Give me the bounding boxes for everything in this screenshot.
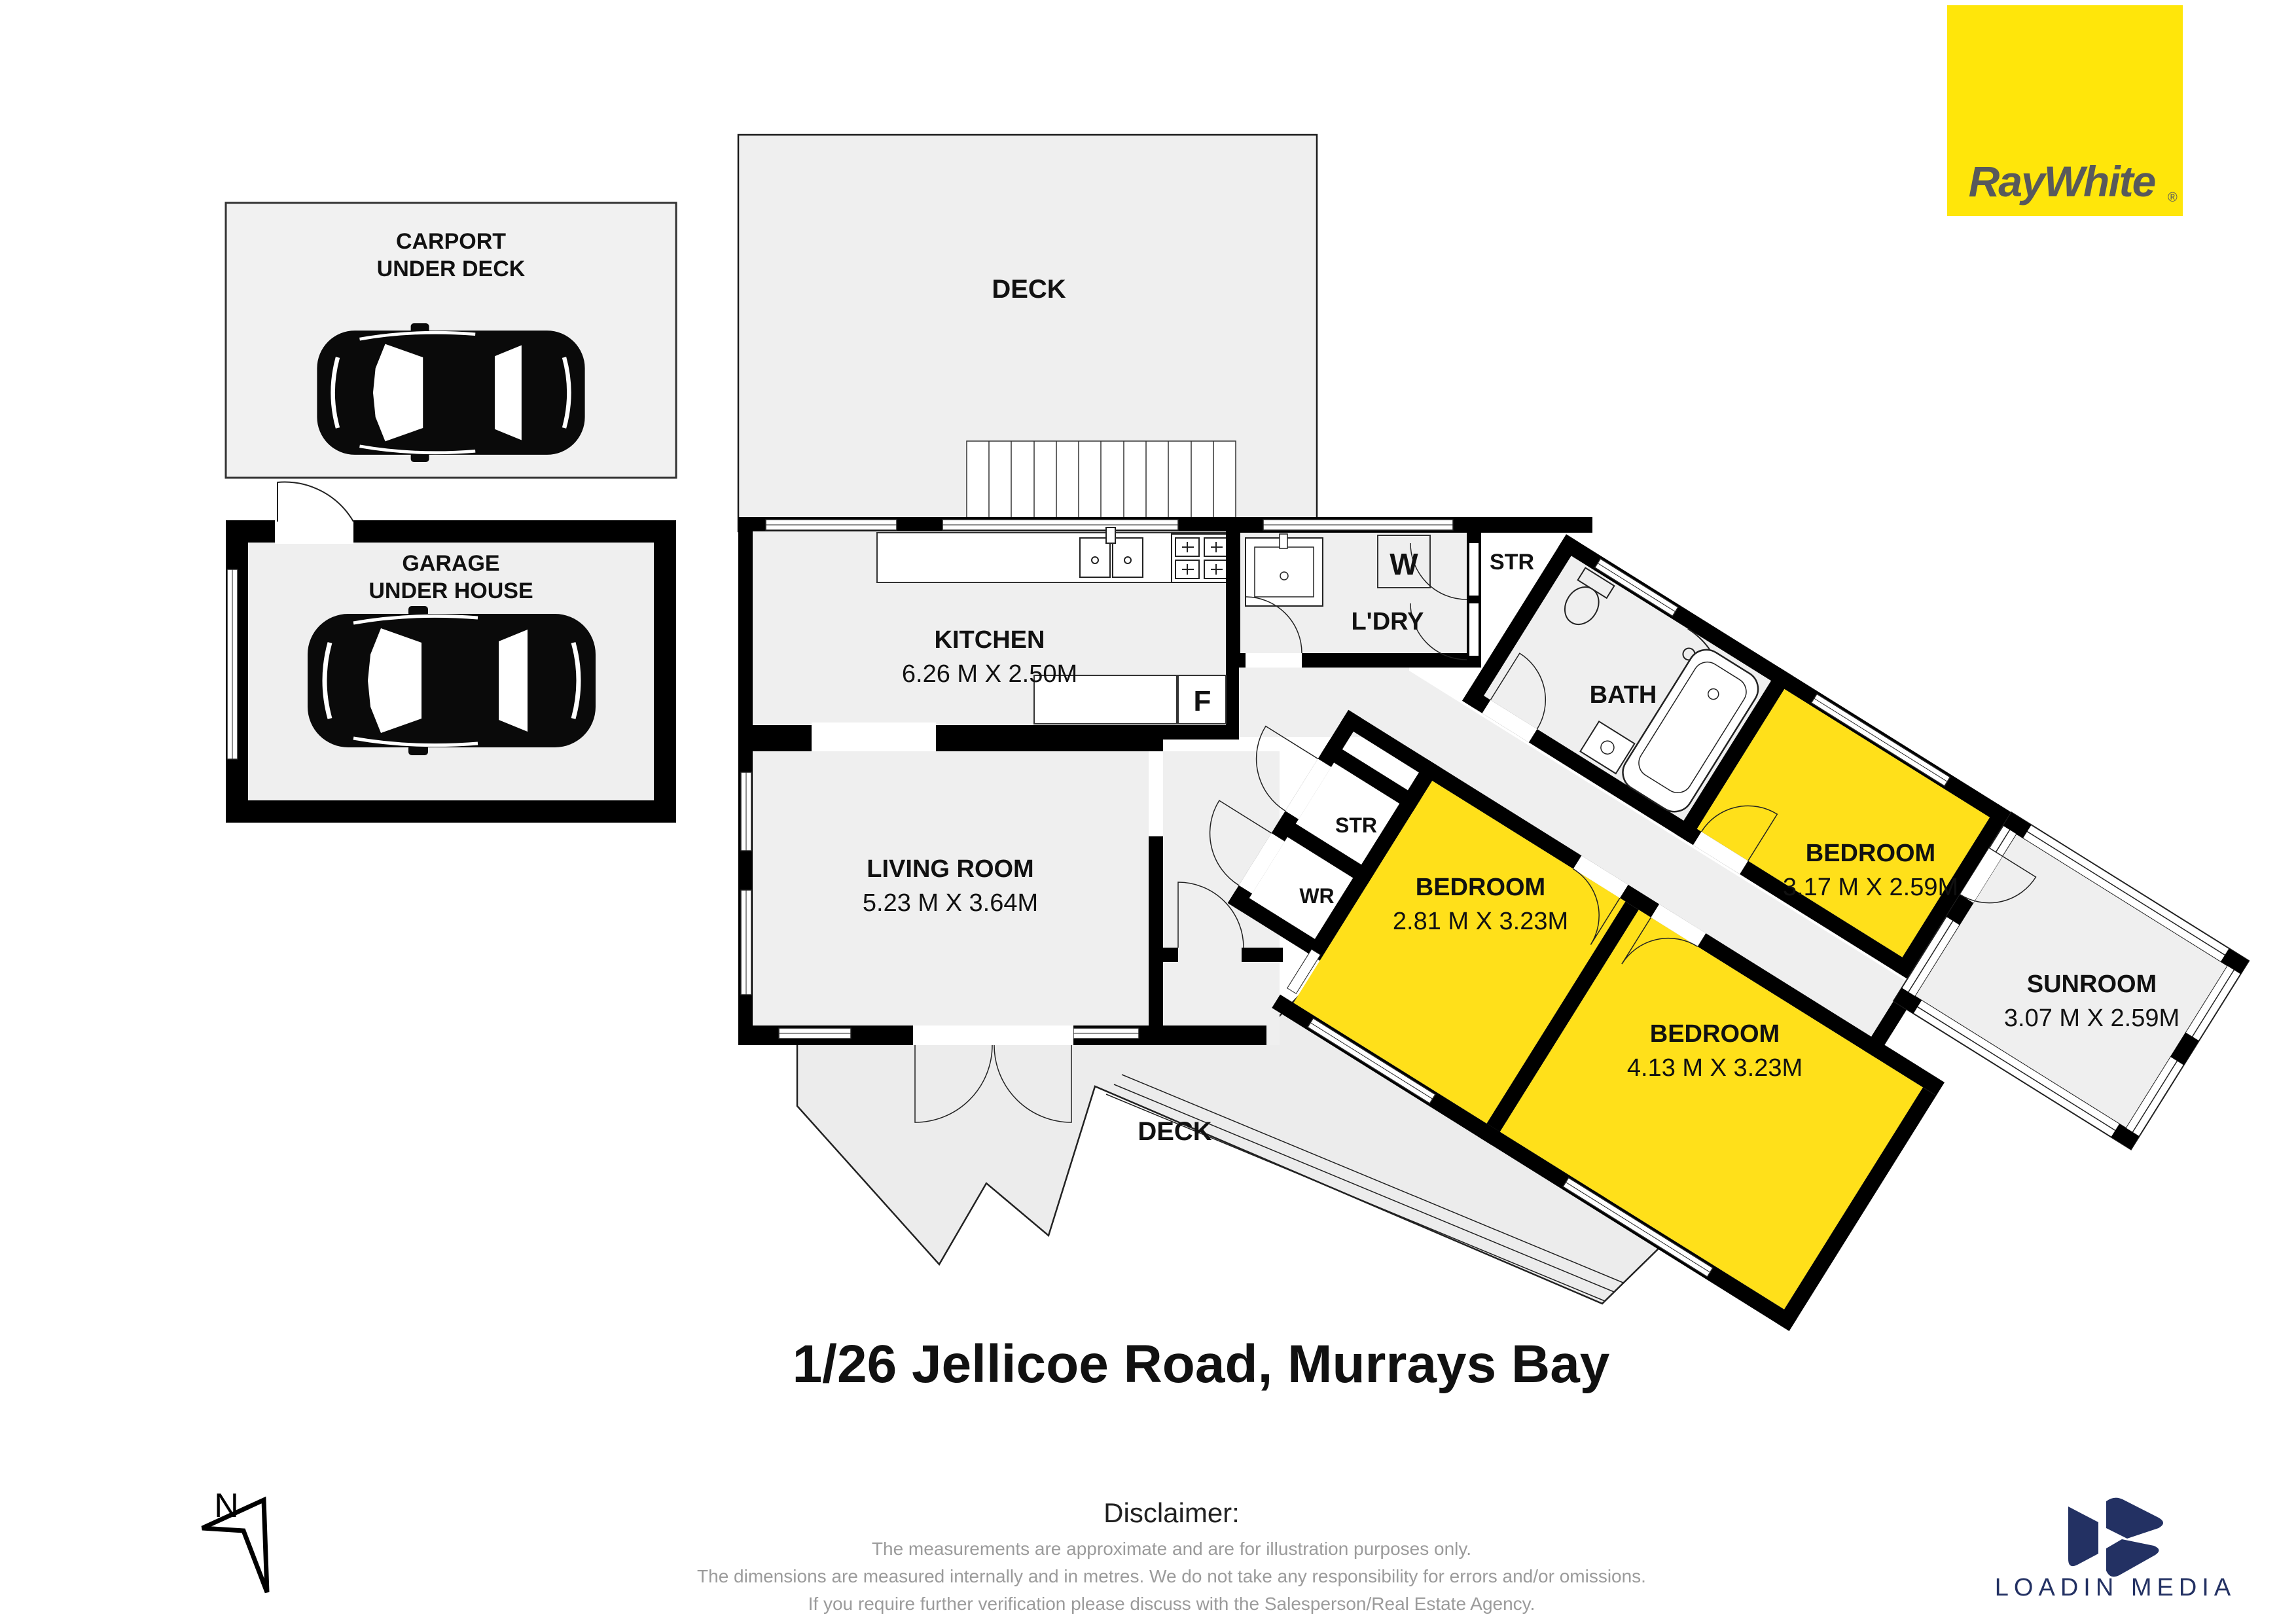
sunroom-label: SUNROOM — [2027, 971, 2157, 998]
living-label: LIVING ROOM — [867, 855, 1033, 883]
garage-label-line2: UNDER HOUSE — [368, 579, 533, 603]
disclaimer-heading: Disclaimer: — [1103, 1497, 1240, 1528]
loadin-media-icon — [2068, 1498, 2163, 1577]
fridge-label: F — [1194, 685, 1211, 717]
bedroom1-label: BEDROOM — [1416, 874, 1545, 901]
str-hall-label: STR — [1490, 550, 1534, 575]
north-arrow: N — [202, 1487, 267, 1592]
disclaimer-block: Disclaimer: The measurements are approxi… — [697, 1497, 1646, 1614]
disclaimer-line2: The dimensions are measured internally a… — [697, 1566, 1646, 1586]
raywhite-logo-text: RayWhite — [1969, 157, 2155, 205]
car-icon-carport — [317, 323, 584, 462]
floorplan-canvas: CARPORT UNDER DECK GARAGE UNDER HOUSE DE… — [0, 0, 2296, 1623]
bath-label: BATH — [1590, 681, 1657, 709]
stove-icon — [1172, 534, 1232, 582]
deck-top-label: DECK — [992, 275, 1066, 304]
disclaimer-line3: If you require further verification plea… — [808, 1594, 1535, 1614]
raywhite-logo: RayWhite ® — [1947, 5, 2183, 216]
washer-label: W — [1390, 547, 1418, 581]
garage-label-line1: GARAGE — [402, 551, 499, 576]
disclaimer-line1: The measurements are approximate and are… — [872, 1539, 1471, 1559]
str-wing-label: STR — [1335, 813, 1377, 837]
carport-label-line2: UNDER DECK — [377, 257, 526, 281]
north-label: N — [214, 1487, 239, 1525]
deck-top-shape — [738, 135, 1317, 531]
kitchen-dims: 6.26 M X 2.50M — [902, 660, 1077, 688]
deck-bottom-label: DECK — [1138, 1117, 1211, 1146]
floorplan-page: CARPORT UNDER DECK GARAGE UNDER HOUSE DE… — [0, 0, 2296, 1623]
carport-label-line1: CARPORT — [396, 229, 506, 254]
bedroom1-dims: 2.81 M X 3.23M — [1393, 908, 1568, 935]
sunroom-dims: 3.07 M X 2.59M — [2004, 1005, 2179, 1032]
laundry-sink-icon — [1246, 534, 1323, 606]
bedroom2-dims: 4.13 M X 3.23M — [1627, 1054, 1803, 1082]
wr-label: WR — [1299, 884, 1334, 908]
kitchen-label: KITCHEN — [935, 626, 1045, 654]
bedroom3-label: BEDROOM — [1806, 840, 1935, 867]
car-icon-garage — [308, 606, 596, 755]
loadin-media-text: LOADIN MEDIA — [1995, 1574, 2236, 1601]
raywhite-reg-mark: ® — [2168, 190, 2178, 205]
bedroom3-dims: 3.17 M X 2.59M — [1783, 874, 1958, 901]
page-title: 1/26 Jellicoe Road, Murrays Bay — [793, 1334, 1610, 1394]
bedroom2-label: BEDROOM — [1650, 1020, 1780, 1048]
loadin-media-logo: LOADIN MEDIA — [1995, 1498, 2236, 1601]
laundry-label: L'DRY — [1351, 608, 1424, 635]
living-dims: 5.23 M X 3.64M — [863, 889, 1038, 917]
